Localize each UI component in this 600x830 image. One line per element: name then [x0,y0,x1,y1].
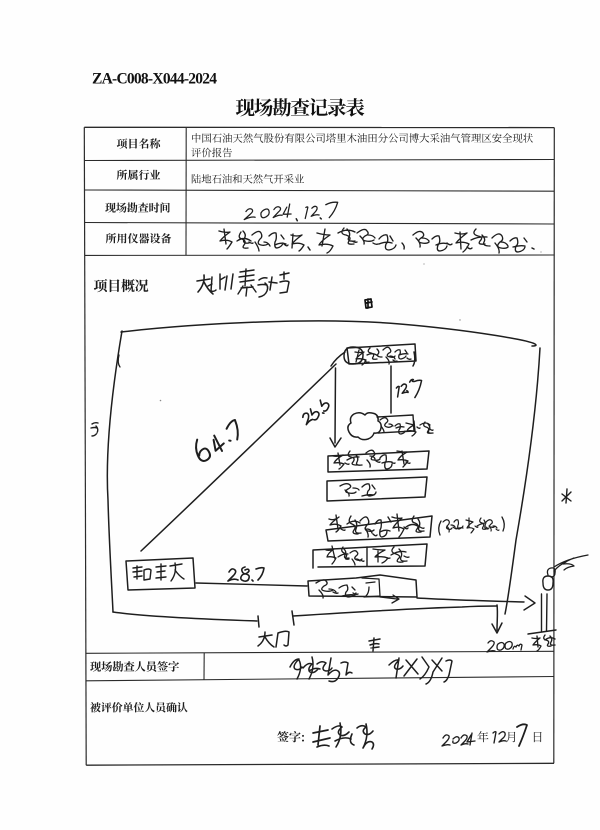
svg-text:ZA-C008-X044-2024: ZA-C008-X044-2024 [92,71,217,88]
